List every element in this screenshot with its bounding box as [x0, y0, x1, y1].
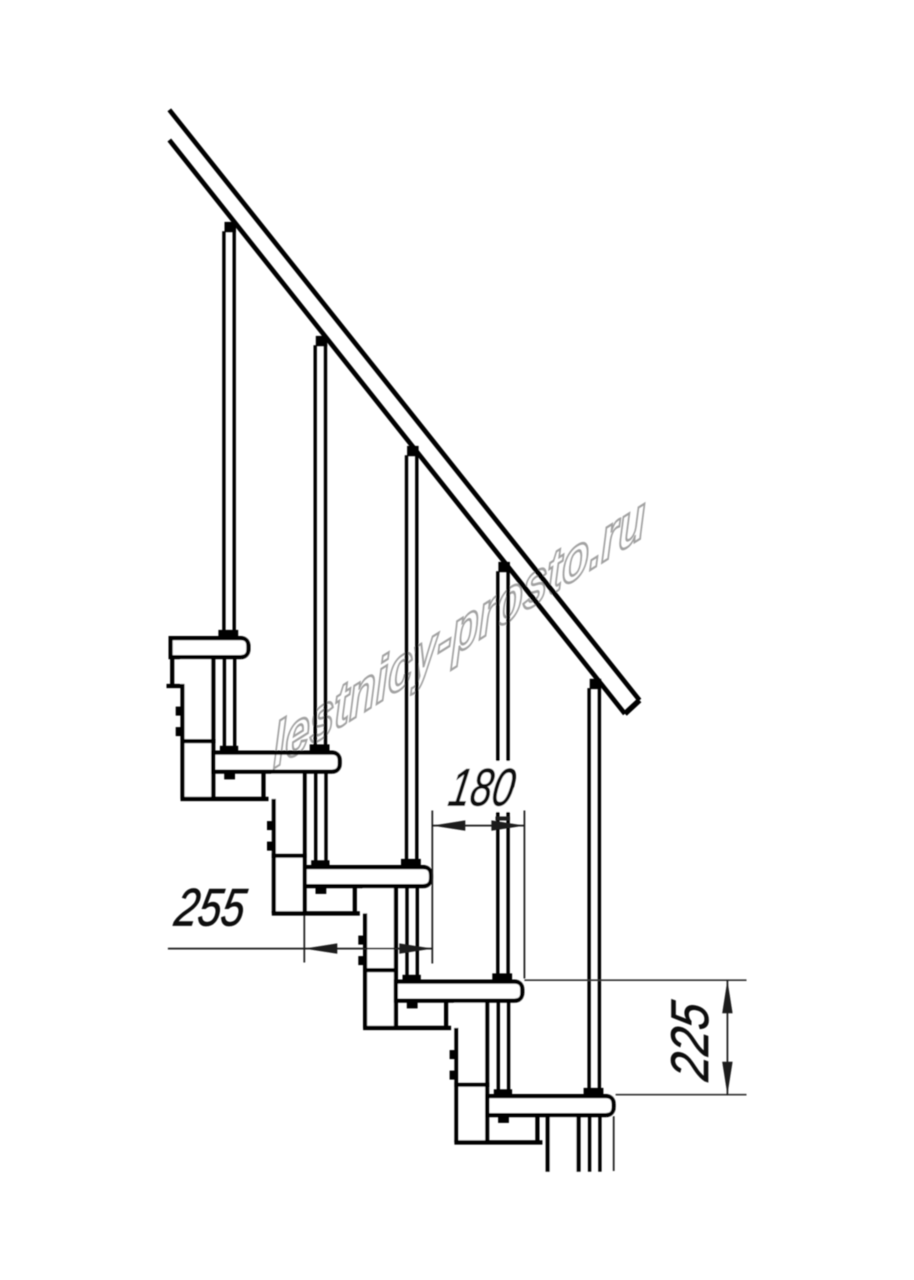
svg-text:180: 180 — [445, 758, 520, 817]
svg-text:225: 225 — [660, 997, 720, 1085]
svg-text:255: 255 — [170, 879, 250, 938]
